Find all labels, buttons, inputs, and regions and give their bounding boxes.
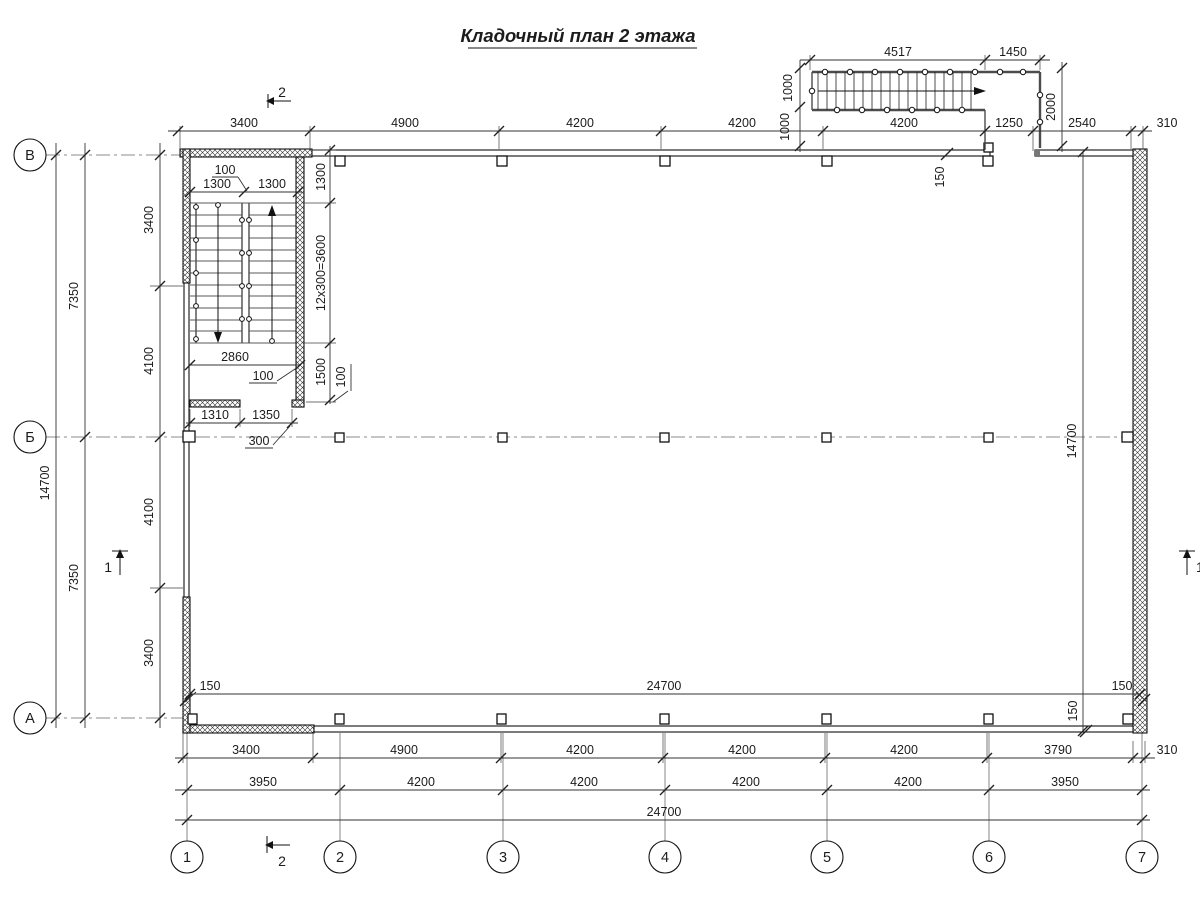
dim-label: 4200 bbox=[407, 775, 435, 789]
dim-label: 3400 bbox=[230, 116, 258, 130]
section-markers: 2 2 1 1 bbox=[104, 84, 1200, 869]
dim-label: 4900 bbox=[391, 116, 419, 130]
dim-label: 310 bbox=[1157, 743, 1178, 757]
wall-end-cap bbox=[1035, 150, 1040, 157]
dim-flight-width: 1300 bbox=[203, 177, 231, 191]
interior-dimensions: 24700 150 150 150 14700 bbox=[200, 424, 1133, 722]
axis-row-label: А bbox=[25, 711, 35, 727]
dim-label: 4200 bbox=[566, 743, 594, 757]
dim-stair-run: 12x300=3600 bbox=[314, 235, 328, 311]
dim-stair-width: 2860 bbox=[221, 350, 249, 364]
dim-label: 3400 bbox=[142, 206, 156, 234]
axis-row-label: В bbox=[25, 148, 35, 164]
dim-wall-150-left: 150 bbox=[200, 679, 221, 693]
dim-label: 1310 bbox=[201, 408, 229, 422]
dim-label: 2540 bbox=[1068, 116, 1096, 130]
drawing-title: Кладочный план 2 этажа bbox=[460, 25, 697, 48]
dim-label: 4517 bbox=[884, 45, 912, 59]
axis-col-label: 3 bbox=[499, 850, 507, 866]
dim-label: 4100 bbox=[142, 347, 156, 375]
dim-label: 4100 bbox=[142, 498, 156, 526]
dim-ext-depth: 2000 bbox=[1044, 93, 1058, 121]
dim-label: 4200 bbox=[728, 116, 756, 130]
interior-staircase bbox=[190, 203, 296, 344]
dim-label: 1450 bbox=[999, 45, 1027, 59]
dim-label: 1350 bbox=[252, 408, 280, 422]
dim-label: 4900 bbox=[390, 743, 418, 757]
dim-label: 1250 bbox=[995, 116, 1023, 130]
bottom-dimension-chains: 3400 4900 4200 4200 4200 3790 310 3950 4… bbox=[232, 743, 1177, 819]
dim-ext-width: 1000 bbox=[778, 113, 792, 141]
axis-col-label: 4 bbox=[661, 850, 669, 866]
axis-col-label: 5 bbox=[823, 850, 831, 866]
dim-ext-width: 1000 bbox=[781, 74, 795, 102]
dim-stair-gap: 100 bbox=[215, 163, 236, 177]
dim-label: 4200 bbox=[728, 743, 756, 757]
dim-flight-width: 1300 bbox=[258, 177, 286, 191]
dim-label: 3950 bbox=[1051, 775, 1079, 789]
axis-col-label: 1 bbox=[183, 850, 191, 866]
dim-label: 4200 bbox=[566, 116, 594, 130]
section-2-label: 2 bbox=[278, 853, 286, 869]
dim-label: 7350 bbox=[67, 564, 81, 592]
dim-label: 3950 bbox=[249, 775, 277, 789]
exterior-stair bbox=[809, 69, 1042, 150]
section-1-label: 1 bbox=[104, 559, 112, 575]
dim-wall-150-right: 150 bbox=[1112, 679, 1133, 693]
dim-stair-wall: 100 bbox=[253, 369, 274, 383]
axis-row-label: Б bbox=[25, 430, 35, 446]
dim-label: 7350 bbox=[67, 282, 81, 310]
section-1-label: 1 bbox=[1196, 559, 1200, 575]
dim-label: 4200 bbox=[894, 775, 922, 789]
axis-col-label: 2 bbox=[336, 850, 344, 866]
dim-label: 4200 bbox=[890, 116, 918, 130]
dim-total-width: 24700 bbox=[647, 805, 682, 819]
dim-label: 3400 bbox=[142, 639, 156, 667]
dim-label: 4200 bbox=[732, 775, 760, 789]
dim-label: 4200 bbox=[570, 775, 598, 789]
floor-plan-drawing: 3400 4900 4200 4200 4200 1250 2540 310 1… bbox=[0, 0, 1200, 900]
page-title: Кладочный план 2 этажа bbox=[460, 25, 695, 46]
dim-landing: 1300 bbox=[314, 163, 328, 191]
dim-label: 310 bbox=[1157, 116, 1178, 130]
dim-label: 4200 bbox=[890, 743, 918, 757]
columns bbox=[183, 143, 1133, 724]
dim-wall-150-top: 150 bbox=[933, 167, 947, 188]
dim-label: 3400 bbox=[232, 743, 260, 757]
dim-stair-wall: 100 bbox=[334, 367, 348, 388]
dim-lower-landing: 1500 bbox=[314, 358, 328, 386]
dim-total-height: 14700 bbox=[38, 466, 52, 501]
axis-grid-lines bbox=[46, 155, 1142, 841]
section-2-label: 2 bbox=[278, 84, 286, 100]
masonry-floor-plan: 3400 4900 4200 4200 4200 1250 2540 310 1… bbox=[0, 0, 1200, 900]
dim-wall-150-right-vertical: 150 bbox=[1066, 701, 1080, 722]
dim-interior-height: 14700 bbox=[1065, 424, 1079, 459]
dim-stair-pier: 300 bbox=[249, 434, 270, 448]
axis-col-label: 7 bbox=[1138, 850, 1146, 866]
axis-col-label: 6 bbox=[985, 850, 993, 866]
dim-interior-width: 24700 bbox=[647, 679, 682, 693]
dim-label: 3790 bbox=[1044, 743, 1072, 757]
